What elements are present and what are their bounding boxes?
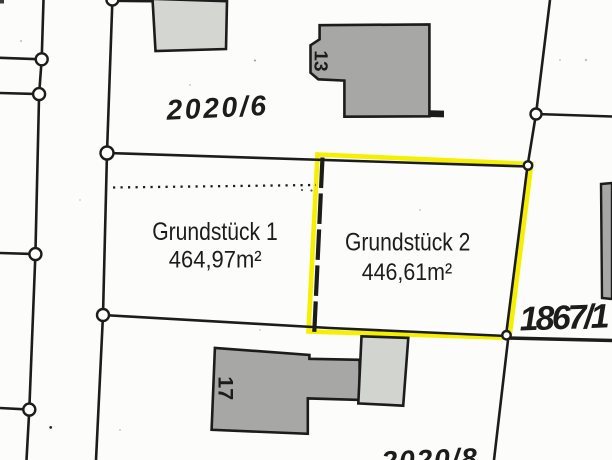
svg-text:2020/6: 2020/6 <box>165 90 267 127</box>
svg-text:1867/1: 1867/1 <box>519 297 610 338</box>
svg-text:17: 17 <box>214 376 238 400</box>
svg-text:2020/8: 2020/8 <box>380 443 478 460</box>
svg-text:Grundstück 1: Grundstück 1 <box>152 218 278 246</box>
svg-text:13: 13 <box>309 50 330 72</box>
svg-text:464,97m²: 464,97m² <box>169 247 262 274</box>
svg-text:446,61m²: 446,61m² <box>362 259 452 286</box>
svg-text:Grundstück 2: Grundstück 2 <box>345 229 470 257</box>
